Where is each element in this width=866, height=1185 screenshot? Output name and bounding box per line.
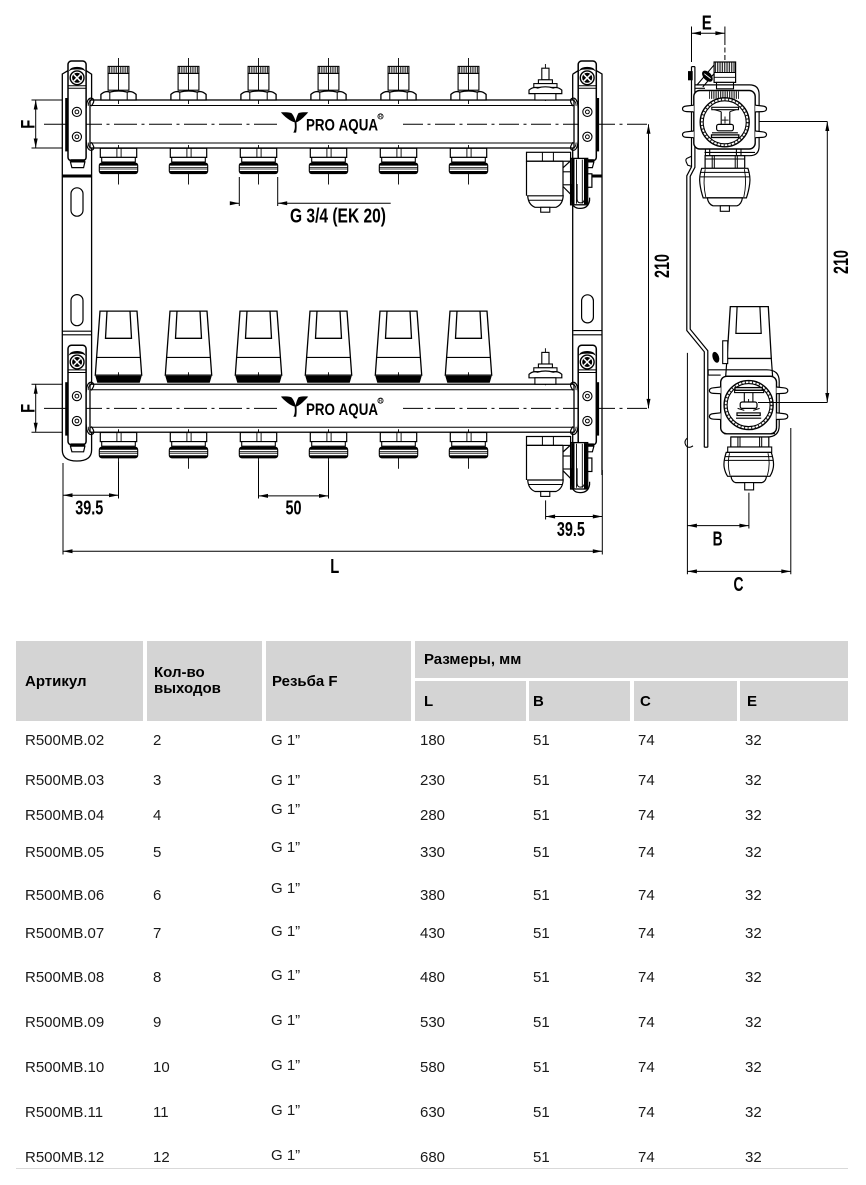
svg-text:50: 50 [286, 497, 302, 519]
svg-text:F: F [19, 120, 40, 129]
svg-text:C: C [734, 574, 744, 596]
svg-text:L: L [330, 556, 339, 578]
svg-text:E: E [702, 12, 712, 34]
svg-text:G 3/4 (EK 20): G 3/4 (EK 20) [290, 206, 386, 228]
svg-text:39.5: 39.5 [557, 519, 585, 541]
svg-text:210: 210 [651, 254, 674, 278]
svg-text:B: B [713, 529, 723, 551]
svg-text:F: F [19, 404, 40, 413]
svg-text:39.5: 39.5 [75, 497, 103, 519]
svg-text:210: 210 [830, 250, 853, 274]
